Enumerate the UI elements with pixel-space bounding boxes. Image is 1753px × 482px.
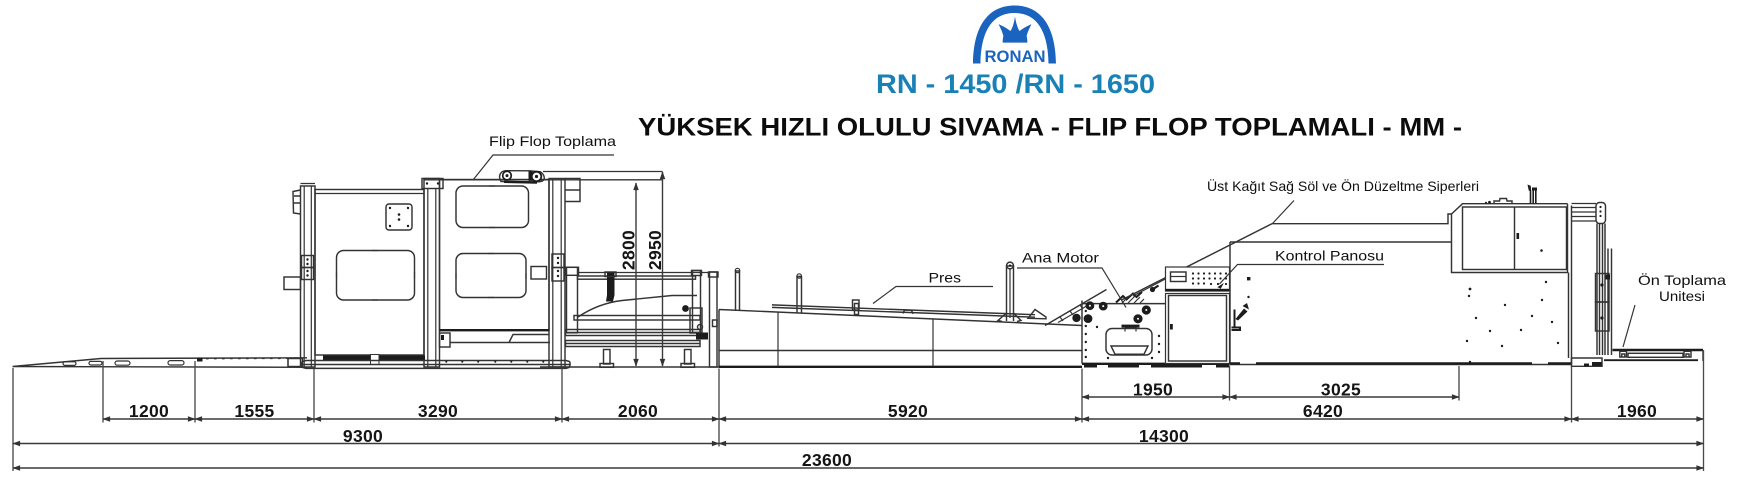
svg-text:1555: 1555 xyxy=(234,401,274,421)
svg-text:6420: 6420 xyxy=(1303,401,1343,421)
svg-text:23600: 23600 xyxy=(802,450,852,470)
svg-text:1950: 1950 xyxy=(1133,380,1173,400)
svg-text:Üst Kağıt Sağ Söl ve Ön Düzelt: Üst Kağıt Sağ Söl ve Ön Düzeltme Siperle… xyxy=(1207,177,1479,194)
svg-text:2060: 2060 xyxy=(618,401,658,421)
svg-text:2800: 2800 xyxy=(619,230,639,270)
svg-text:1200: 1200 xyxy=(129,401,169,421)
svg-text:3290: 3290 xyxy=(418,401,458,421)
svg-text:RONAN: RONAN xyxy=(985,47,1046,66)
svg-text:2950: 2950 xyxy=(645,230,665,270)
svg-text:RN - 1450 /RN - 1650: RN - 1450 /RN - 1650 xyxy=(876,69,1155,99)
svg-text:YÜKSEK HIZLI OLULU SIVAMA - FL: YÜKSEK HIZLI OLULU SIVAMA - FLIP FLOP TO… xyxy=(638,113,1462,142)
svg-text:Flip Flop Toplama: Flip Flop Toplama xyxy=(489,133,616,149)
svg-text:Ön Toplama: Ön Toplama xyxy=(1638,271,1726,288)
svg-text:Ana Motor: Ana Motor xyxy=(1022,250,1099,266)
svg-text:1960: 1960 xyxy=(1617,401,1657,421)
svg-text:Pres: Pres xyxy=(929,270,962,286)
svg-text:9300: 9300 xyxy=(343,426,383,446)
svg-text:Kontrol Panosu: Kontrol Panosu xyxy=(1275,248,1384,264)
svg-text:Unitesi: Unitesi xyxy=(1659,288,1705,304)
svg-text:14300: 14300 xyxy=(1139,426,1189,446)
svg-text:3025: 3025 xyxy=(1321,380,1361,400)
svg-text:5920: 5920 xyxy=(888,401,928,421)
